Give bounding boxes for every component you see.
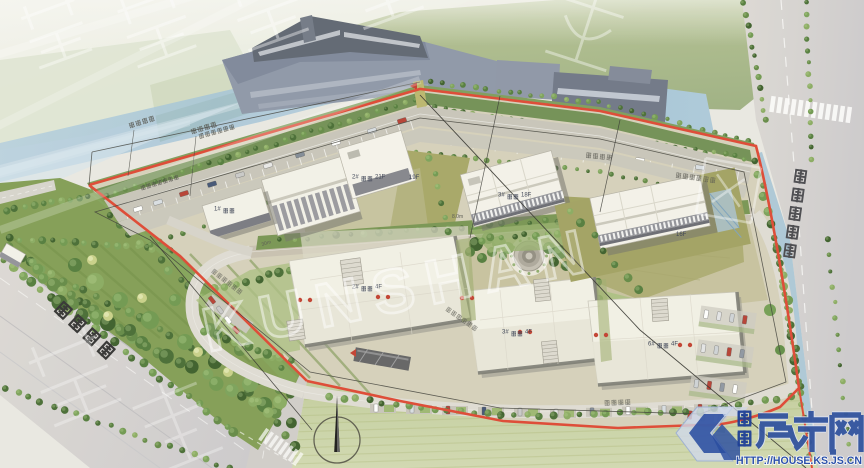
svg-text:HTTP://HOUSE.KS.JS.CN: HTTP://HOUSE.KS.JS.CN [736,455,862,467]
